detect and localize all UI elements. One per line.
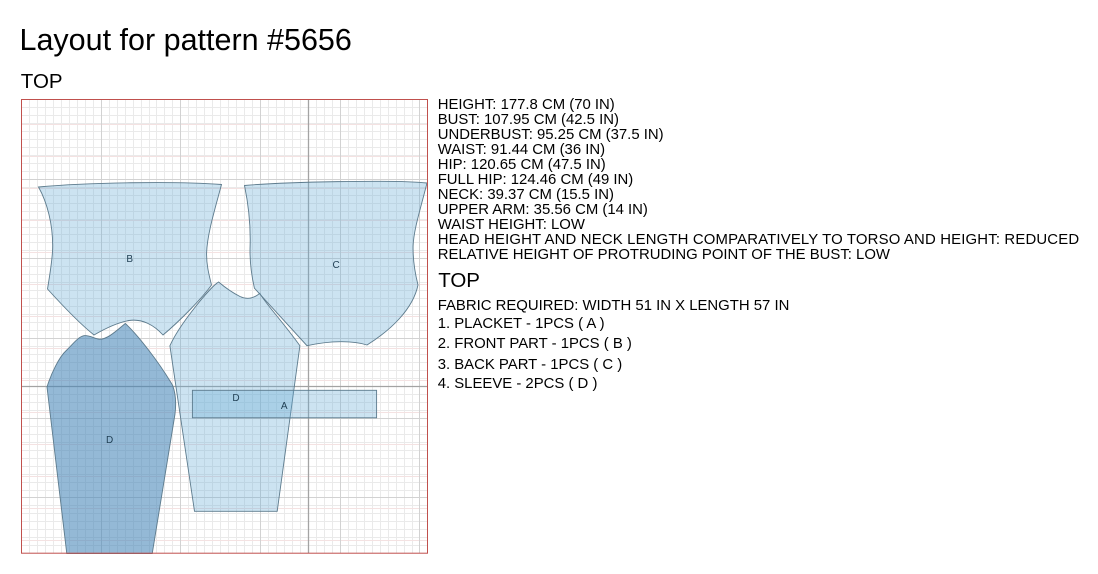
svg-text:D: D xyxy=(232,393,239,404)
svg-text:C: C xyxy=(333,260,340,271)
svg-text:A: A xyxy=(281,401,288,412)
svg-text:B: B xyxy=(126,254,133,265)
svg-text:D: D xyxy=(106,435,113,446)
